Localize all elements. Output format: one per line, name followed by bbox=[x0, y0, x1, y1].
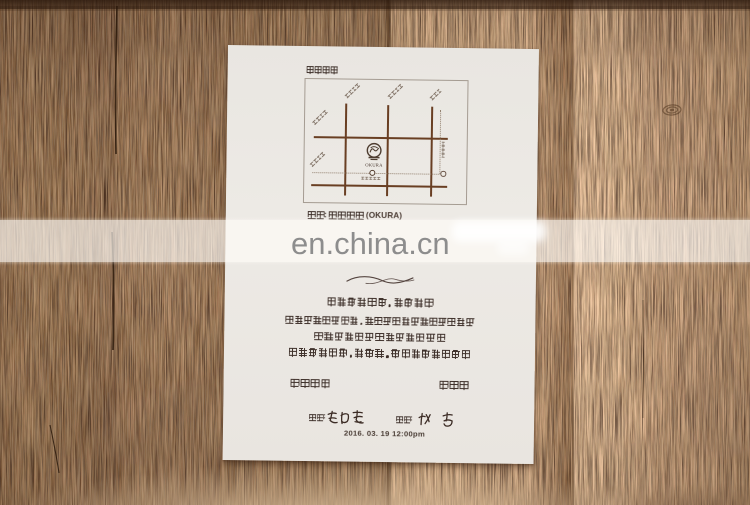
svg-text:OKURA: OKURA bbox=[365, 162, 383, 167]
